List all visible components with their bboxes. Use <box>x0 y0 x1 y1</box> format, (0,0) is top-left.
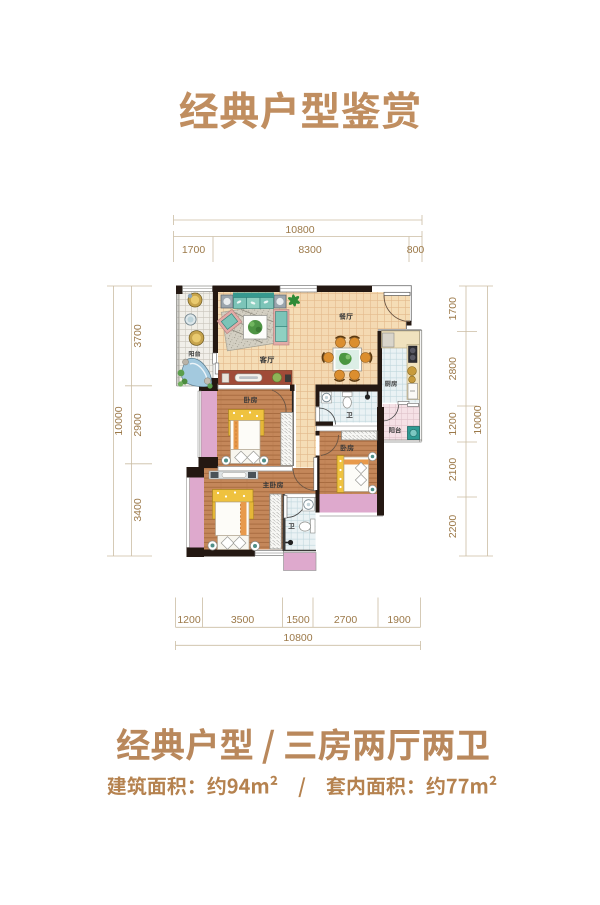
svg-text:10800: 10800 <box>285 224 314 236</box>
svg-text:2200: 2200 <box>447 515 459 539</box>
svg-text:1700: 1700 <box>447 297 459 321</box>
svg-text:2700: 2700 <box>334 614 358 626</box>
svg-text:800: 800 <box>407 244 425 256</box>
svg-text:1200: 1200 <box>447 412 459 436</box>
svg-text:2800: 2800 <box>447 357 459 381</box>
svg-text:1700: 1700 <box>182 244 206 256</box>
svg-text:1900: 1900 <box>387 614 411 626</box>
svg-text:10000: 10000 <box>472 405 484 434</box>
svg-text:3500: 3500 <box>231 614 255 626</box>
svg-text:10000: 10000 <box>113 406 125 435</box>
svg-text:1200: 1200 <box>177 614 201 626</box>
svg-text:2900: 2900 <box>132 413 144 437</box>
svg-text:1500: 1500 <box>286 614 310 626</box>
svg-text:3400: 3400 <box>132 498 144 522</box>
svg-text:10800: 10800 <box>283 632 312 644</box>
svg-text:2100: 2100 <box>447 458 459 482</box>
svg-text:8300: 8300 <box>298 244 322 256</box>
svg-text:3700: 3700 <box>132 324 144 348</box>
